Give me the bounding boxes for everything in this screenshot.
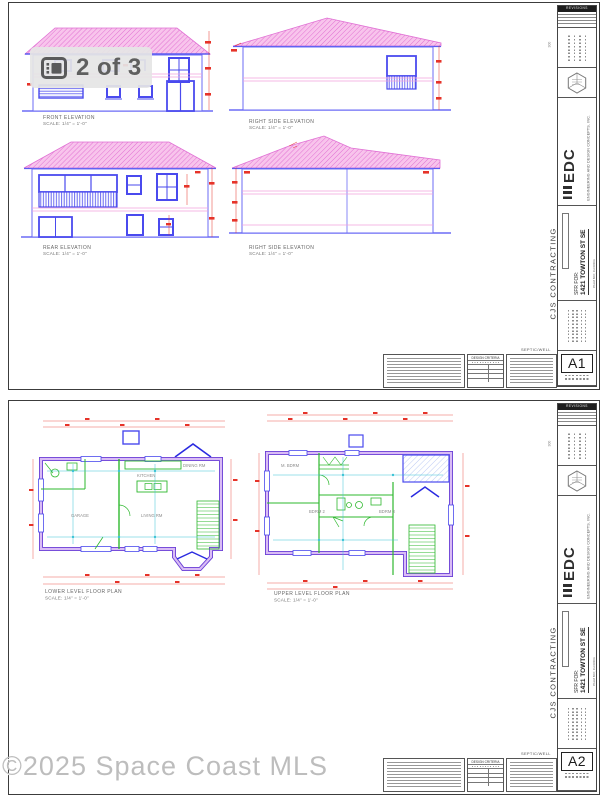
engineer-seal-block xyxy=(558,466,596,496)
roof-features xyxy=(349,435,363,447)
revisions-block: REVISIONS xyxy=(558,6,596,28)
sheet-caption-line xyxy=(565,375,589,377)
firm-abbrev: EDC xyxy=(562,546,577,581)
engineer-seal-block xyxy=(558,68,596,98)
revisions-block: REVISIONS xyxy=(558,404,596,426)
title-block: REVISIONS EDC ENGINEERING AND DESIGN CON… xyxy=(557,403,597,792)
room-label-living: LIVING RM xyxy=(141,513,163,518)
project-block: SFR FOR: 1421 TOWTON ST SE PALM BAY, FLO… xyxy=(558,206,596,301)
sheet-number-block: A1 xyxy=(558,351,596,386)
info-text-line xyxy=(572,309,574,342)
mls-watermark: ©2025 Space Coast MLS xyxy=(2,751,328,782)
revision-row xyxy=(558,419,596,422)
firm-logo-block: EDC ENGINEERING AND DESIGN CONCEPTS, INC… xyxy=(558,98,596,206)
address-text-line xyxy=(585,34,587,60)
view-scale: SCALE: 1/4" = 1'-0" xyxy=(249,251,293,256)
gallery-icon xyxy=(41,57,67,79)
project-address: 1421 TOWTON ST SE xyxy=(581,627,589,693)
info-text-line xyxy=(581,309,583,342)
address-text-line xyxy=(574,34,576,60)
info-text-line xyxy=(568,309,570,342)
design-criteria-box: DESIGN CRITERIA xyxy=(467,354,504,388)
lower-level-floor-plan-drawing: GARAGE LIVING RM KITCHEN DINING RM LOWER… xyxy=(25,409,245,609)
address-text-line xyxy=(585,432,587,458)
upper-level-floor-plan-drawing: M. BDRM BDRM 2 BDRM 3 UPPER LEVEL FLOOR … xyxy=(253,405,477,611)
info-text-line xyxy=(585,707,587,740)
firm-abbrev: EDC xyxy=(562,148,577,183)
info-text-line xyxy=(576,309,578,342)
address-text-line xyxy=(579,34,581,60)
info-text-line xyxy=(576,707,578,740)
view-title: LOWER LEVEL FLOOR PLAN xyxy=(45,589,122,595)
address-text-line xyxy=(574,432,576,458)
photo-count-label: 2 of 3 xyxy=(76,54,142,82)
general-notes-box xyxy=(506,354,557,388)
sheet-a2-floor-plans: GARAGE LIVING RM KITCHEN DINING RM LOWER… xyxy=(8,400,600,795)
room-label-kitchen: KITCHEN xyxy=(137,473,155,478)
sheet-caption-line xyxy=(565,773,589,775)
address-text-line xyxy=(579,432,581,458)
design-criteria-box: DESIGN CRITERIA xyxy=(467,758,504,792)
margin-note: 300 xyxy=(549,440,553,446)
septic-well-label: SEPTIC/WELL xyxy=(521,751,551,756)
sheet-number: A2 xyxy=(561,752,593,771)
firm-address-block xyxy=(558,28,596,68)
edc-hexagon-seal-icon xyxy=(566,469,588,493)
rear-elevation-drawing: REAR ELEVATION SCALE: 1/4" = 1'-0" xyxy=(19,127,223,257)
edc-hexagon-seal-icon xyxy=(566,71,588,95)
right-side-elevation-top-drawing: RIGHT SIDE ELEVATION SCALE: 1/4" = 1'-0" xyxy=(227,5,455,133)
walls-openings xyxy=(243,47,433,110)
margin-note: 300 xyxy=(549,41,553,47)
sheet-number-block: A2 xyxy=(558,749,596,791)
septic-well-label: SEPTIC/WELL xyxy=(521,347,551,352)
signature-box xyxy=(562,213,569,269)
address-text-line xyxy=(568,432,570,458)
sheet-caption-line xyxy=(565,776,589,778)
walls-openings xyxy=(242,169,433,233)
firm-logo-block: EDC ENGINEERING AND DESIGN CONCEPTS, INC… xyxy=(558,496,596,604)
room-label-garage: GARAGE xyxy=(71,513,89,518)
project-info-block xyxy=(558,699,596,749)
project-city: PALM BAY, FLORIDA xyxy=(593,259,596,288)
notes-strip: DESIGN CRITERIA xyxy=(383,354,557,388)
view-scale: SCALE: 1/4" = 1'-0" xyxy=(43,251,87,256)
design-criteria-row xyxy=(468,378,503,383)
permit-notes-box xyxy=(383,758,465,792)
exterior-walls xyxy=(265,451,454,576)
room-label-dining: DINING RM xyxy=(183,463,206,468)
room-label-master: M. BDRM xyxy=(281,463,300,468)
view-scale: SCALE: 1/4" = 1'-0" xyxy=(43,121,87,126)
view-scale: SCALE: 1/4" = 1'-0" xyxy=(45,596,89,601)
roof xyxy=(24,142,216,169)
info-text-line xyxy=(572,707,574,740)
firm-name: ENGINEERING AND DESIGN CONCEPTS, INC. xyxy=(587,115,591,201)
project-block: SFR FOR: 1421 TOWTON ST SE PALM BAY, FLO… xyxy=(558,604,596,699)
design-criteria-row xyxy=(468,782,503,787)
sheet-caption-line xyxy=(565,378,589,380)
sheet-number: A1 xyxy=(561,354,593,373)
project-info-block xyxy=(558,301,596,351)
permit-notes-box xyxy=(383,354,465,388)
client-name-vertical: CJS CONTRACTING xyxy=(550,626,558,718)
room-label-bdrm3: BDRM 3 xyxy=(379,509,395,514)
design-criteria-header: DESIGN CRITERIA xyxy=(468,355,503,360)
view-scale: SCALE: 1/4" = 1'-0" xyxy=(274,598,318,603)
roof xyxy=(233,18,441,47)
info-text-line xyxy=(568,707,570,740)
info-text-line xyxy=(585,309,587,342)
room-label-bdrm2: BDRM 2 xyxy=(309,509,325,514)
photo-gallery-badge[interactable]: 2 of 3 xyxy=(30,47,152,88)
signature-box xyxy=(562,611,569,667)
project-city: PALM BAY, FLORIDA xyxy=(593,657,596,686)
right-side-elevation-bottom-drawing: RIGHT SIDE ELEVATION SCALE: 1/4" = 1'-0" xyxy=(227,127,455,257)
edc-logo-bars-icon xyxy=(563,584,572,597)
address-text-line xyxy=(568,34,570,60)
client-name-vertical: CJS CONTRACTING xyxy=(550,227,558,319)
roof-features xyxy=(123,431,211,457)
notes-strip: DESIGN CRITERIA xyxy=(383,758,557,792)
revision-row xyxy=(558,21,596,24)
firm-address-block xyxy=(558,426,596,466)
firm-name: ENGINEERING AND DESIGN CONCEPTS, INC. xyxy=(587,513,591,599)
roof xyxy=(232,136,440,169)
view-title: UPPER LEVEL FLOOR PLAN xyxy=(274,591,350,597)
title-block: REVISIONS EDC ENGINEERING AND DESIGN CON… xyxy=(557,5,597,387)
general-notes-box xyxy=(506,758,557,792)
info-text-line xyxy=(581,707,583,740)
project-address: 1421 TOWTON ST SE xyxy=(581,229,589,295)
walls-openings xyxy=(32,169,208,237)
edc-logo-bars-icon xyxy=(563,186,572,199)
design-criteria-header: DESIGN CRITERIA xyxy=(468,759,503,764)
